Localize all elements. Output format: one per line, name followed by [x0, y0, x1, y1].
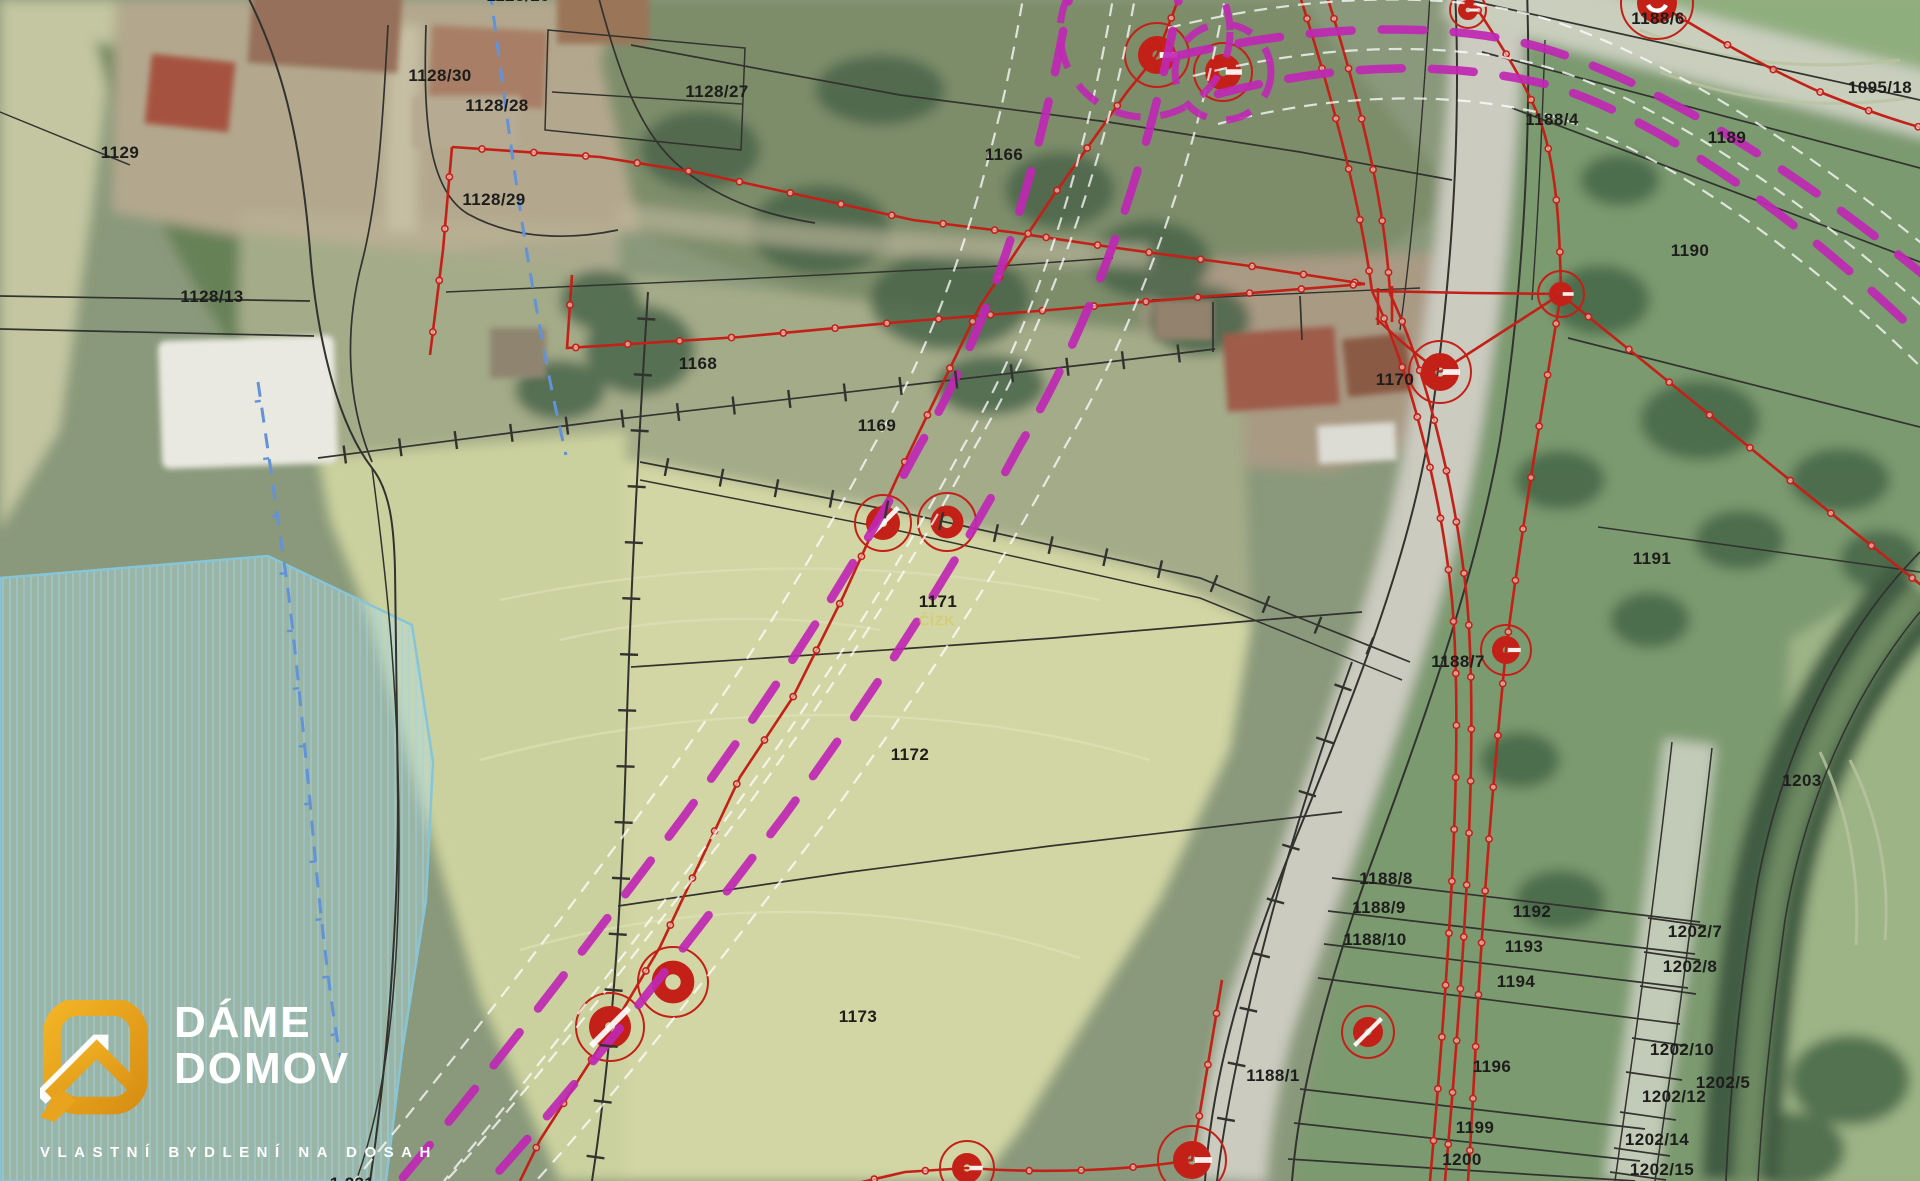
brand-name-line2: DOMOV [174, 1046, 350, 1092]
brand-tagline: VLASTNÍ BYDLENÍ NA DOSAH [40, 1144, 460, 1161]
brand-watermark: DÁME DOMOV VLASTNÍ BYDLENÍ NA DOSAH [40, 1000, 460, 1161]
brand-logo-icon [40, 1000, 158, 1122]
brand-name-line1: DÁME [174, 1000, 350, 1046]
map-canvas[interactable]: 11291128/301128/281128/271128/291128/131… [0, 0, 1920, 1181]
